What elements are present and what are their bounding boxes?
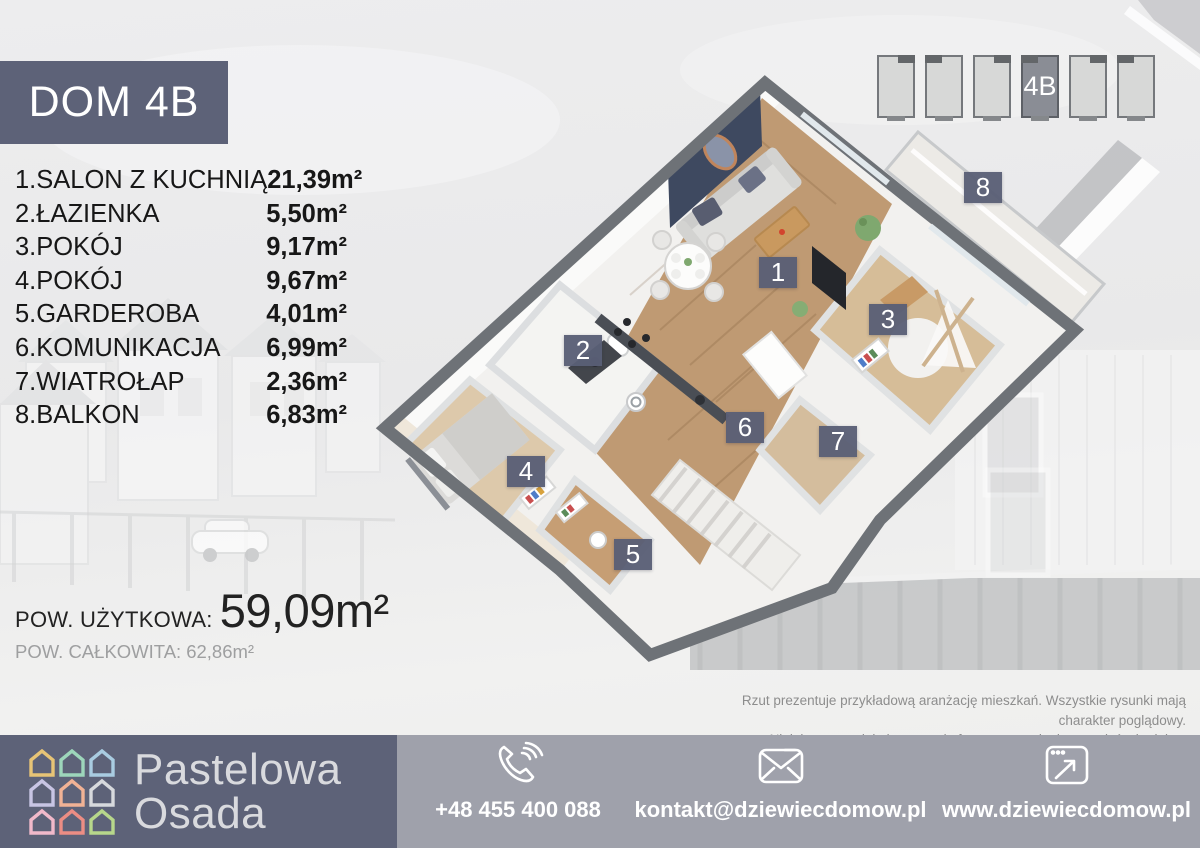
room-name: 8.BALKON [15, 399, 140, 433]
brand-line-1: Pastelowa [134, 748, 342, 792]
garderoba-5 [540, 480, 650, 590]
website-contact[interactable]: www.dziewiecdomow.pl [944, 740, 1189, 844]
room-area: 5,50m² [266, 198, 347, 232]
background-hedge [690, 566, 1200, 670]
room-list: 1.SALON Z KUCHNIĄ21,39m² 2.ŁAZIENKA5,50m… [15, 164, 347, 433]
usable-area-label: POW. UŻYTKOWA: [15, 607, 213, 633]
footer-brand-block: Pastelowa Osada [0, 735, 397, 848]
room-name: 7.WIATROŁAP [15, 366, 185, 400]
room-marker-4: 4 [507, 456, 545, 487]
room-row: 1.SALON Z KUCHNIĄ21,39m² [15, 164, 347, 198]
room-area: 2,36m² [266, 366, 347, 400]
room-3 [815, 250, 1000, 430]
room-row: 4.POKÓJ9,67m² [15, 265, 347, 299]
room-row: 2.ŁAZIENKA5,50m² [15, 198, 347, 232]
room-row: 7.WIATROŁAP2,36m² [15, 366, 347, 400]
room-name: 1.SALON Z KUCHNIĄ [15, 164, 267, 198]
room-row: 3.POKÓJ9,17m² [15, 231, 347, 265]
footer-bar: Pastelowa Osada +48 455 400 088 kontakt@… [0, 735, 1200, 848]
site-plan-unit-6[interactable] [1117, 55, 1155, 118]
brand-line-2: Osada [134, 792, 342, 836]
phone-contact[interactable]: +48 455 400 088 [418, 740, 618, 844]
room-name: 2.ŁAZIENKA [15, 198, 160, 232]
total-area-value: 62,86m² [186, 641, 254, 663]
room-marker-7: 7 [819, 426, 857, 457]
disclaimer-line-1: Rzut prezentuje przykładową aranżację mi… [716, 691, 1186, 730]
room-marker-3: 3 [869, 304, 907, 335]
phone-number: +48 455 400 088 [435, 797, 601, 823]
room-marker-number: 8 [976, 172, 990, 203]
room-marker-number: 7 [831, 426, 845, 457]
wood-floor [575, 98, 892, 565]
brand-name: Pastelowa Osada [134, 748, 342, 836]
apartment-interior [385, 83, 1075, 655]
site-plan-unit-2[interactable] [925, 55, 963, 118]
room-marker-number: 3 [881, 304, 895, 335]
staircase [652, 460, 800, 590]
room-area: 6,83m² [266, 399, 347, 433]
kitchen-counter [598, 318, 726, 420]
outer-walls [385, 83, 1075, 655]
browser-cursor-icon [1041, 740, 1093, 792]
room-marker-1: 1 [759, 257, 797, 288]
pastel-houses-logo-icon [28, 749, 118, 835]
site-plan-unit-4b-selected[interactable]: 4B [1021, 55, 1059, 118]
room-marker-number: 4 [519, 456, 533, 487]
balcony-area [886, 132, 1104, 322]
phone-icon [492, 740, 544, 792]
site-plan-unit-5[interactable] [1069, 55, 1107, 118]
room-area: 6,99m² [266, 332, 347, 366]
room-row: 8.BALKON6,83m² [15, 399, 347, 433]
room-marker-number: 5 [626, 539, 640, 570]
site-plan-unit-3[interactable] [973, 55, 1011, 118]
room-name: 6.KOMUNIKACJA [15, 332, 220, 366]
living-room-furniture [651, 88, 881, 398]
envelope-icon [755, 740, 807, 792]
selected-unit-label: 4B [1023, 71, 1056, 102]
bedroom-4 [405, 380, 560, 525]
sw-wall-face [393, 419, 568, 561]
total-area-label: POW. CAŁKOWITA: [15, 641, 181, 663]
room-area: 9,67m² [266, 265, 347, 299]
usable-area-value: 59,09m² [220, 583, 389, 638]
room-row: 6.KOMUNIKACJA6,99m² [15, 332, 347, 366]
area-summary: POW. UŻYTKOWA: 59,09m² POW. CAŁKOWITA: 6… [15, 583, 389, 663]
room-name: 3.POKÓJ [15, 231, 123, 265]
nw-wall-face [394, 93, 774, 438]
room-name: 4.POKÓJ [15, 265, 123, 299]
room-row: 5.GARDEROBA4,01m² [15, 298, 347, 332]
room-name: 5.GARDEROBA [15, 298, 199, 332]
room-marker-number: 2 [576, 335, 590, 366]
room-marker-number: 6 [738, 412, 752, 443]
room-area: 4,01m² [266, 298, 347, 332]
email-address: kontakt@dziewiecdomow.pl [634, 797, 926, 823]
room-marker-2: 2 [564, 335, 602, 366]
room-marker-6: 6 [726, 412, 764, 443]
background-car [192, 520, 268, 562]
website-url: www.dziewiecdomow.pl [942, 797, 1191, 823]
background-house-right [928, 0, 1200, 575]
room-area: 9,17m² [266, 231, 347, 265]
email-contact[interactable]: kontakt@dziewiecdomow.pl [628, 740, 933, 844]
room-marker-5: 5 [614, 539, 652, 570]
window-glazing [802, 114, 1028, 304]
room-marker-number: 1 [771, 257, 785, 288]
unit-title: DOM 4B [29, 78, 200, 127]
flyer-canvas: DOM 4B 1.SALON Z KUCHNIĄ21,39m² 2.ŁAZIEN… [0, 0, 1200, 848]
unit-title-badge: DOM 4B [0, 61, 228, 144]
bathroom [490, 285, 660, 450]
room-marker-8: 8 [964, 172, 1002, 203]
site-plan-unit-1[interactable] [877, 55, 915, 118]
room-area: 21,39m² [267, 164, 362, 198]
